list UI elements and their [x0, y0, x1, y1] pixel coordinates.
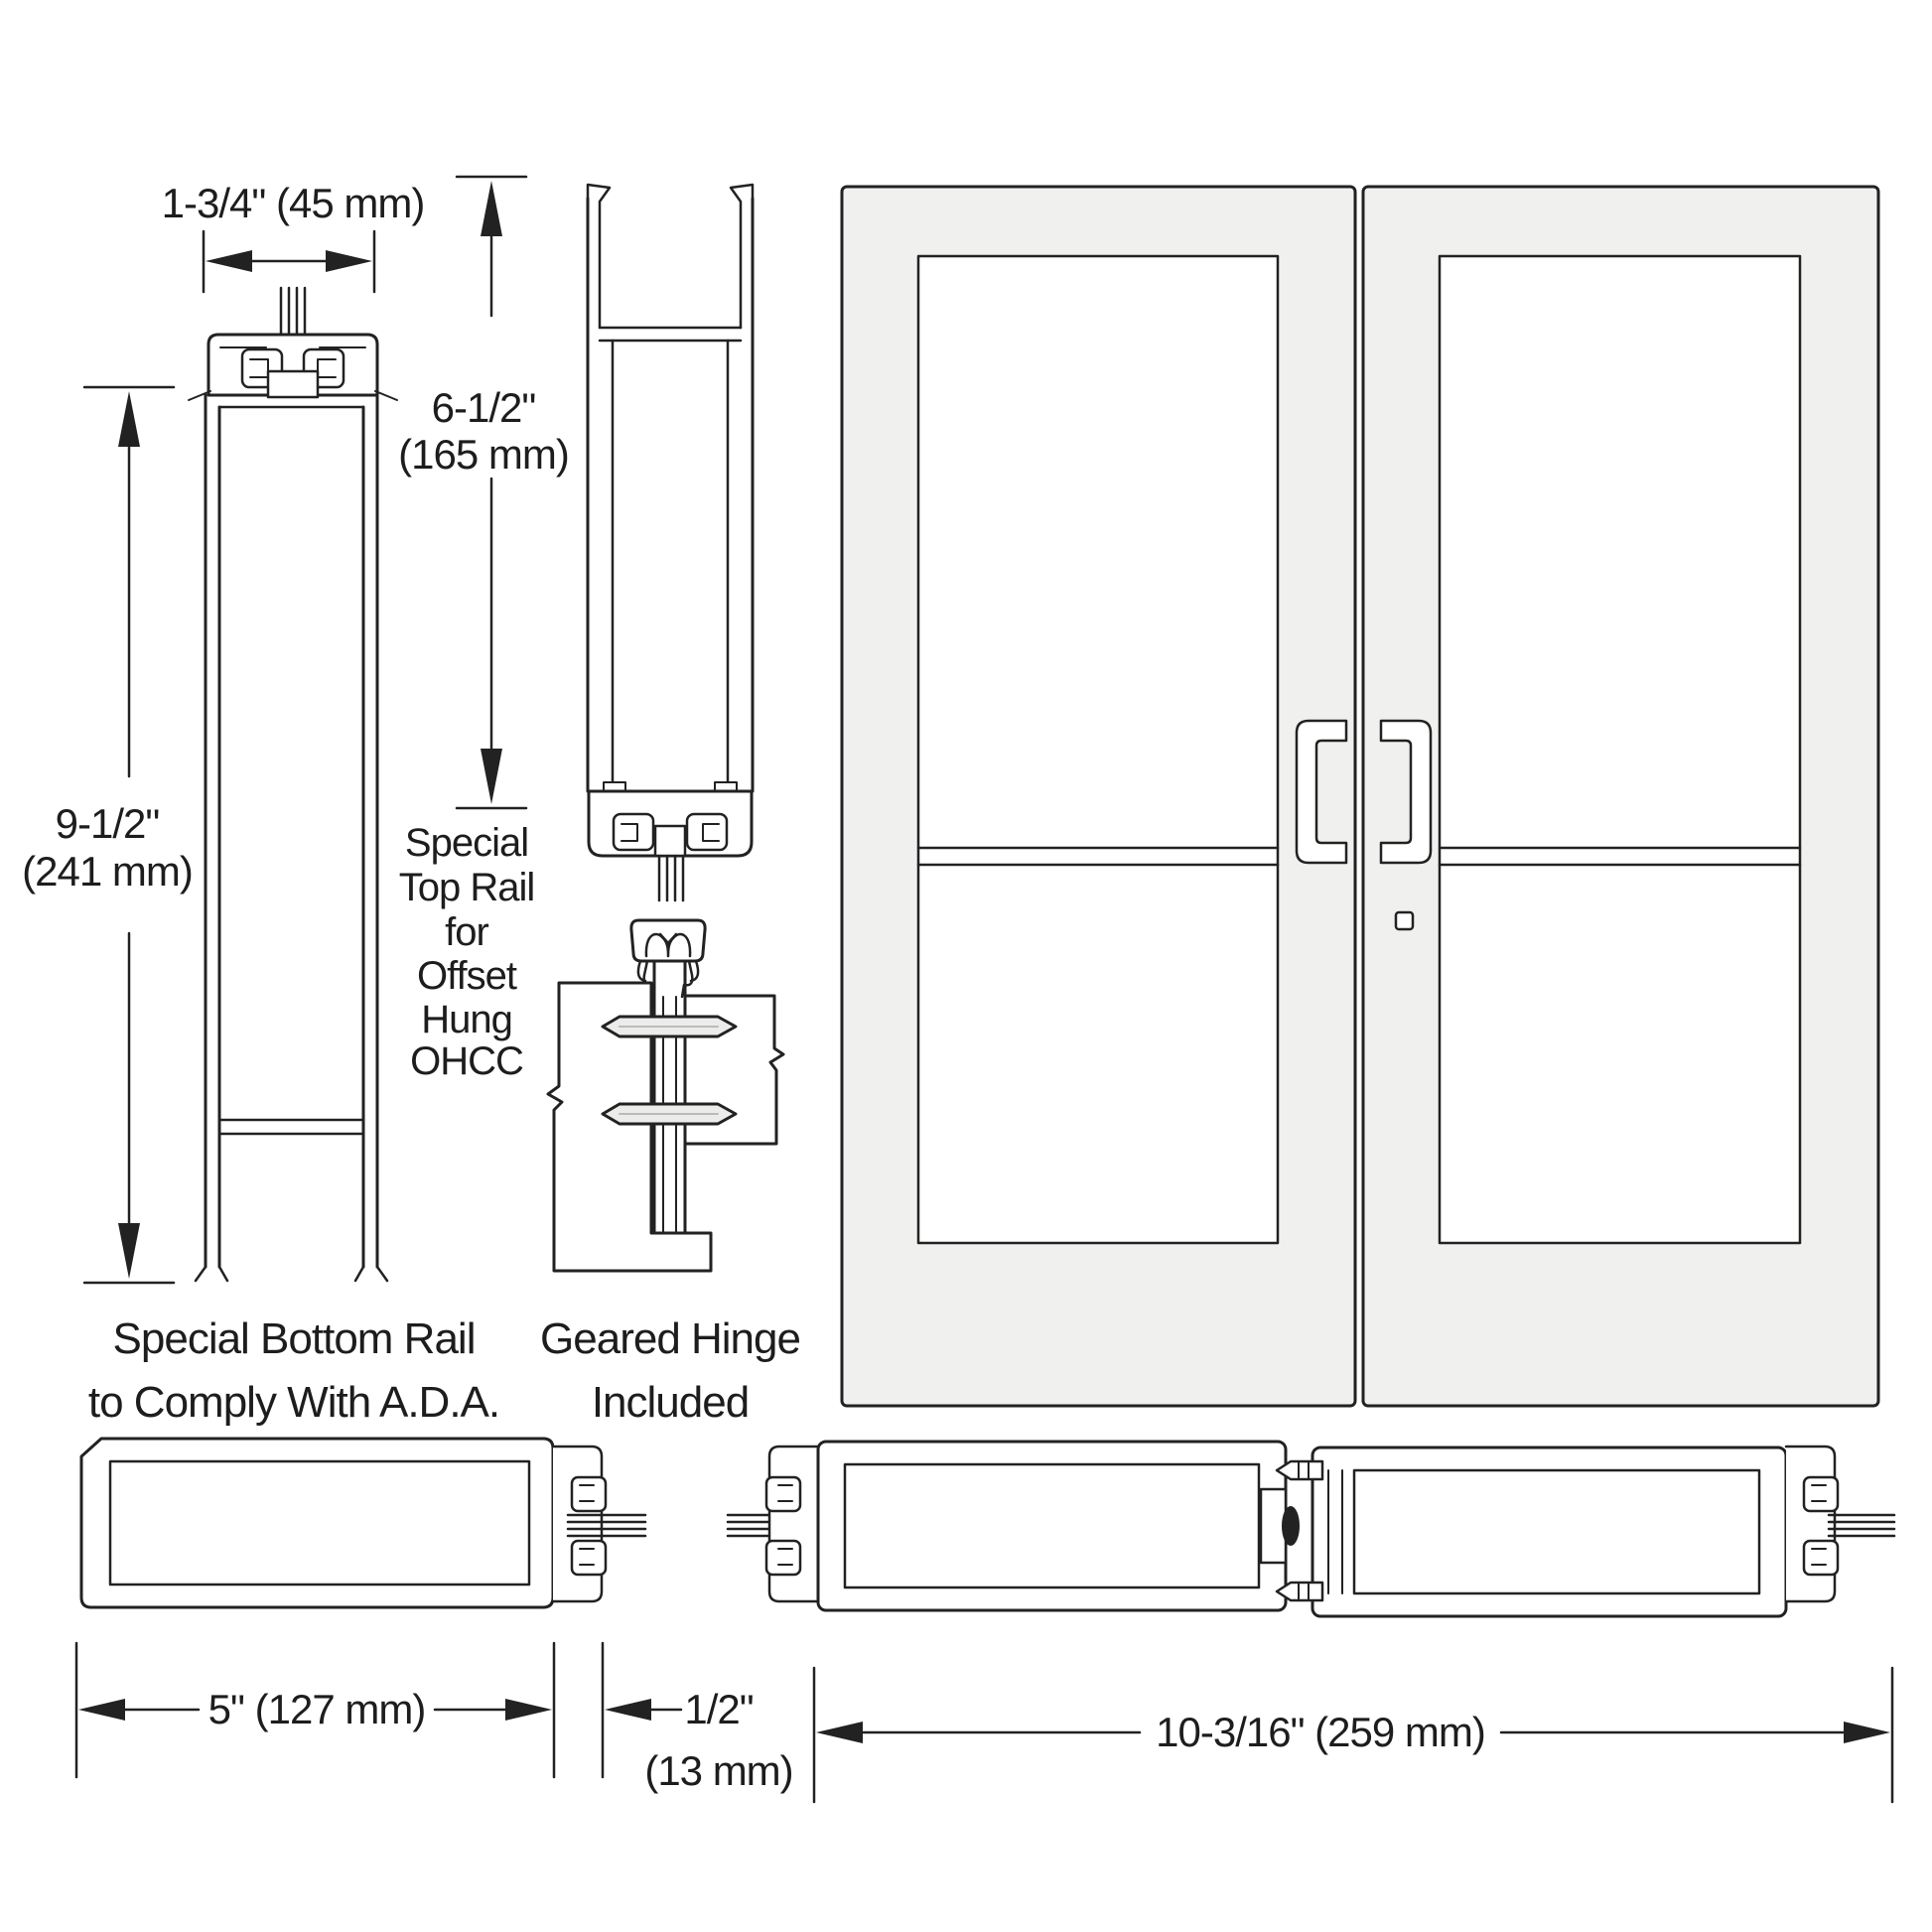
glass-clamp	[589, 782, 752, 856]
dim-label-gap-mm: (13 mm)	[644, 1749, 792, 1793]
top-rail-note-line-4: Offset	[417, 955, 516, 997]
glass-clamp	[189, 335, 397, 400]
top-rail-note-line-5: Hung	[421, 999, 512, 1040]
bottom-rail-section-view	[84, 231, 397, 1283]
cylinder-lock	[1396, 912, 1413, 929]
dim-label-bottom-rail-mm: (241 mm)	[22, 850, 193, 894]
glass-stub-bottom	[659, 856, 683, 900]
right-door-glass	[1440, 256, 1800, 1243]
top-rail-section-view	[457, 177, 753, 900]
dim-top-rail-height	[457, 177, 526, 808]
hinge-stile-2-outer	[1312, 1448, 1786, 1616]
glass-clamp-right	[1786, 1447, 1838, 1601]
bottom-rail-note-line-1: Special Bottom Rail	[113, 1316, 476, 1362]
dim-label-top-rail-mm: (165 mm)	[398, 433, 569, 477]
geared-hinge-detail	[548, 920, 783, 1271]
top-rail-note-line-1: Special	[405, 822, 528, 864]
hinge-stile-1-outer	[818, 1442, 1286, 1610]
bottom-rail-note-line-2: to Comply With A.D.A.	[88, 1380, 499, 1426]
dim-label-hinge-stile-pair: 10-3/16" (259 mm)	[1156, 1711, 1485, 1754]
dim-label-gap-in: 1/2"	[684, 1688, 753, 1731]
glass-clamp	[553, 1447, 606, 1601]
hinge-note-line-2: Included	[592, 1380, 749, 1426]
glass-clamp-left	[766, 1447, 818, 1601]
left-door-glass	[918, 256, 1278, 1243]
glass-stub-right	[1829, 1515, 1894, 1536]
glass-stub-top	[281, 288, 305, 335]
hinge-note-line-1: Geared Hinge	[540, 1316, 800, 1362]
diagram-canvas	[0, 0, 1932, 1932]
stile-outer	[81, 1439, 553, 1607]
dim-label-lock-stile: 5" (127 mm)	[208, 1688, 426, 1731]
top-rail-note-line-3: for	[445, 911, 488, 953]
top-rail-note-line-2: Top Rail	[399, 867, 535, 908]
double-door-front-view	[842, 187, 1878, 1406]
diagram-page: 1-3/4" (45 mm) 6-1/2" (165 mm) 9-1/2" (2…	[0, 0, 1932, 1932]
dim-label-stile-width: 1-3/4" (45 mm)	[162, 182, 425, 225]
dim-label-top-rail-in: 6-1/2"	[432, 386, 536, 430]
dim-label-bottom-rail-in: 9-1/2"	[56, 802, 160, 846]
rail-body	[196, 395, 387, 1281]
rail-walls	[588, 185, 753, 791]
dim-stile-width	[204, 231, 374, 292]
top-rail-note-line-6: OHCC	[410, 1040, 523, 1082]
